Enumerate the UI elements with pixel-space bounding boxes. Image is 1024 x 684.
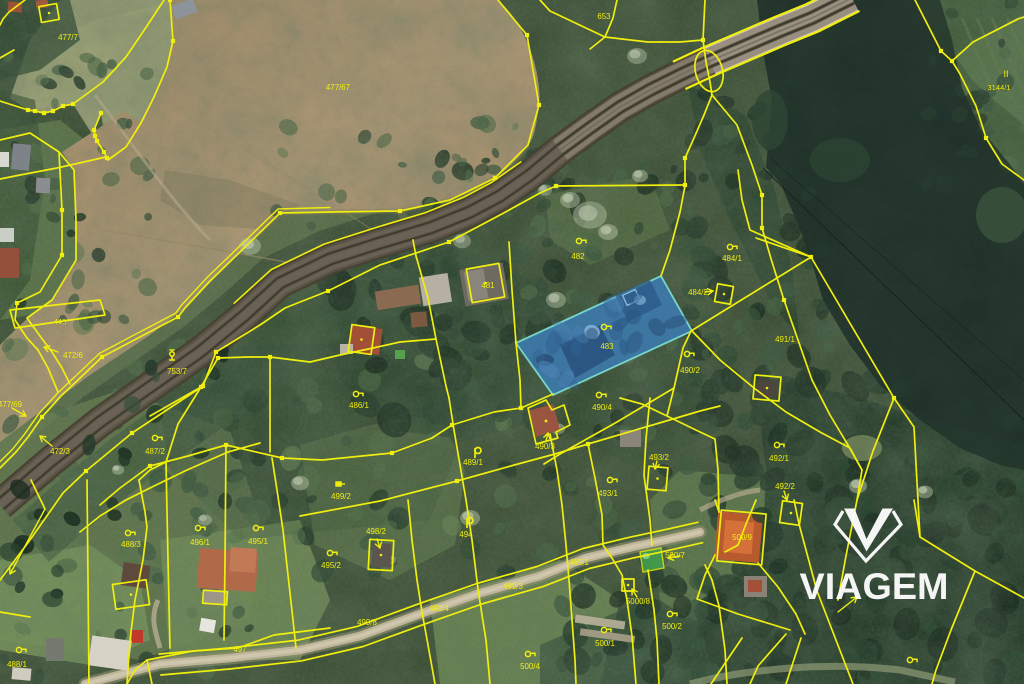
svg-text:477/69: 477/69 [0,400,23,409]
svg-text:497: 497 [233,645,246,654]
svg-text:489/1: 489/1 [463,458,483,467]
svg-text:496/1: 496/1 [190,538,210,547]
svg-text:477/7: 477/7 [58,33,78,42]
svg-text:499/3: 499/3 [503,582,523,591]
svg-text:499/1: 499/1 [569,558,589,567]
svg-text:484/2: 484/2 [688,288,708,297]
svg-text:490/2: 490/2 [680,366,700,375]
svg-text:481: 481 [481,281,494,290]
svg-text:487/2: 487/2 [145,447,165,456]
svg-text:477/67: 477/67 [326,83,350,92]
svg-text:753/7: 753/7 [167,367,187,376]
svg-text:3144/1: 3144/1 [988,83,1011,92]
svg-text:492/1: 492/1 [769,454,789,463]
svg-text:443: 443 [54,317,67,326]
svg-text:653: 653 [597,12,611,21]
svg-text:499/8: 499/8 [357,618,377,627]
svg-text:5000/8: 5000/8 [626,597,651,606]
svg-text:495/1: 495/1 [248,537,268,546]
svg-text:493/2: 493/2 [649,453,669,462]
svg-text:488/1: 488/1 [7,660,27,669]
svg-text:472/3: 472/3 [50,447,70,456]
svg-text:483: 483 [600,342,614,351]
svg-text:488/3: 488/3 [121,540,141,549]
svg-text:486/1: 486/1 [349,401,369,410]
svg-text:499/4: 499/4 [429,604,449,613]
svg-text:482: 482 [571,252,584,261]
svg-text:500/1: 500/1 [595,639,615,648]
svg-text:500/2: 500/2 [662,622,682,631]
svg-text:493/1: 493/1 [598,489,618,498]
svg-text:472/6: 472/6 [63,351,83,360]
svg-text:492/2: 492/2 [775,482,795,491]
svg-text:491/1: 491/1 [775,335,795,344]
svg-text:490/4: 490/4 [592,403,612,412]
svg-text:500/7: 500/7 [665,551,685,560]
svg-text:495/2: 495/2 [321,561,341,570]
svg-text:490/3: 490/3 [535,442,555,451]
svg-text:494: 494 [459,530,473,539]
svg-text:500/4: 500/4 [520,662,540,671]
svg-text:499/2: 499/2 [331,492,351,501]
svg-text:498/2: 498/2 [366,527,386,536]
svg-text:II: II [1003,69,1008,79]
svg-text:500/9: 500/9 [732,533,752,542]
svg-text:484/1: 484/1 [722,254,742,263]
svg-text:VIAGEM: VIAGEM [800,566,949,607]
